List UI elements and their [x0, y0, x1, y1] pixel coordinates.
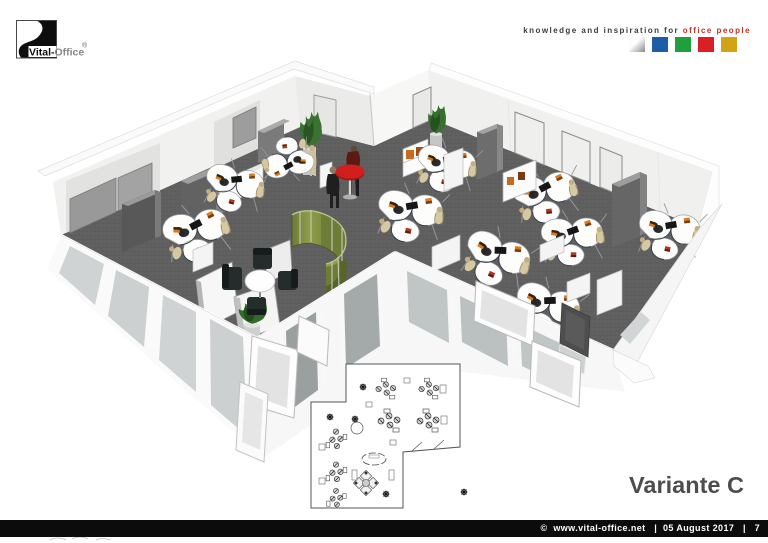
svg-text:Vital-Office: Vital-Office: [29, 47, 84, 59]
svg-text:knowledge and inspiration for: knowledge and inspiration for office peo…: [523, 26, 751, 35]
svg-text:®: ®: [82, 42, 88, 50]
